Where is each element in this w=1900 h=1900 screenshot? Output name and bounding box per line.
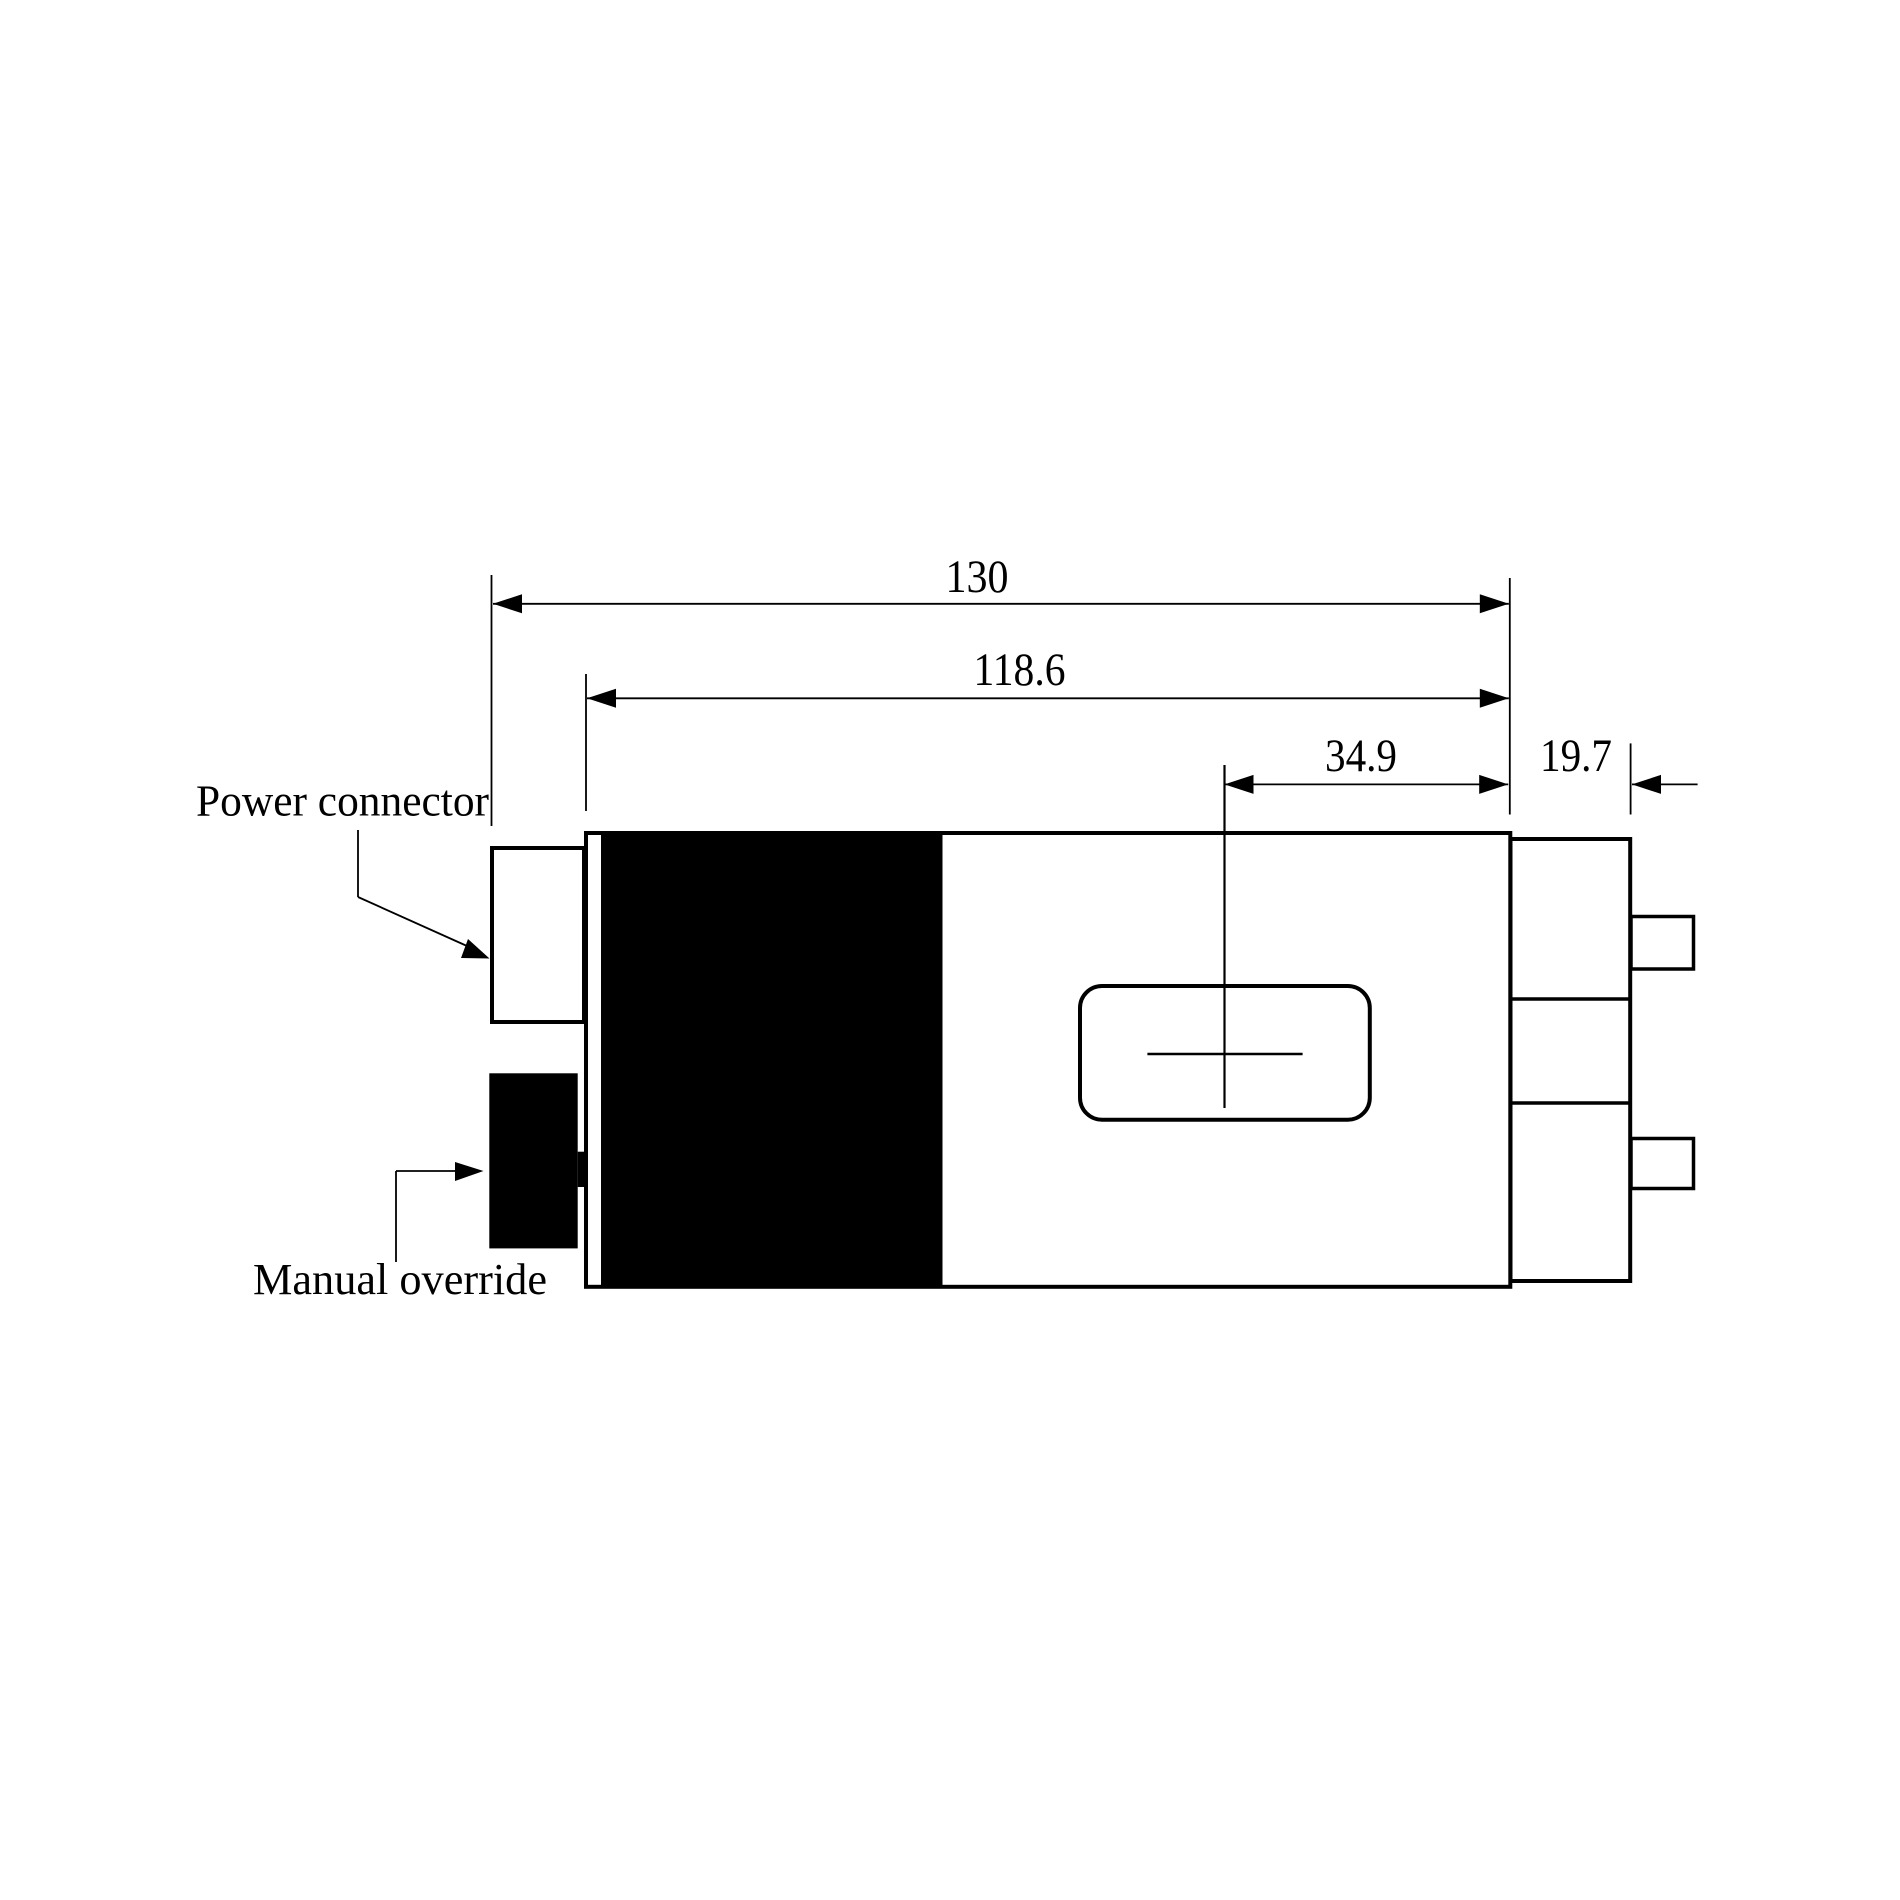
svg-text:Manual override: Manual override <box>253 1255 547 1304</box>
svg-text:130: 130 <box>946 552 1009 603</box>
svg-text:118.6: 118.6 <box>974 645 1066 696</box>
svg-text:19.7: 19.7 <box>1540 731 1612 782</box>
svg-text:Power connector: Power connector <box>196 777 489 826</box>
svg-text:34.9: 34.9 <box>1325 731 1397 782</box>
